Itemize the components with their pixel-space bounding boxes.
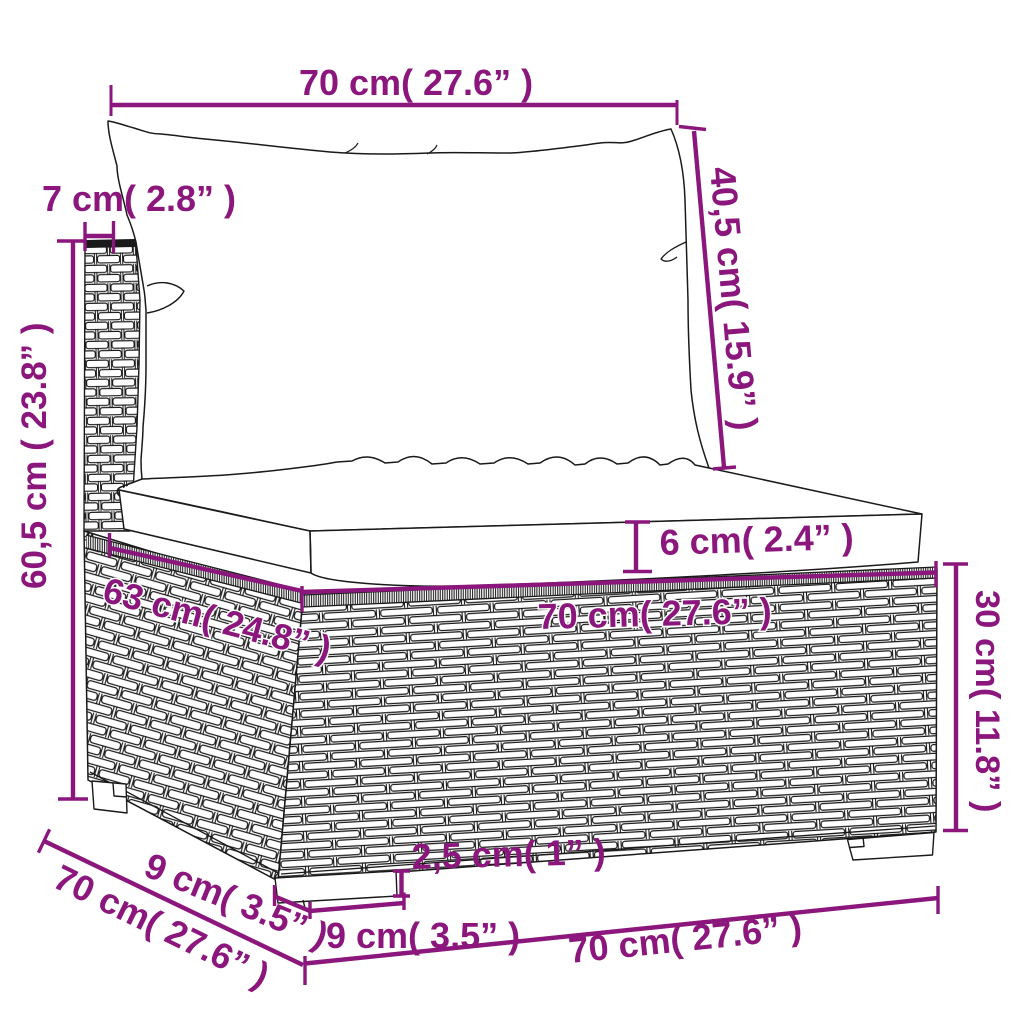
svg-text:30 cm( 11.8” ): 30 cm( 11.8” ) [968, 590, 1006, 812]
svg-text:2,5 cm( 1” ): 2,5 cm( 1” ) [411, 831, 606, 877]
svg-text:70 cm( 27.6” ): 70 cm( 27.6” ) [537, 590, 772, 637]
svg-text:7 cm( 2.8” ): 7 cm( 2.8” ) [42, 178, 236, 219]
svg-text:70 cm( 27.6” ): 70 cm( 27.6” ) [299, 62, 533, 103]
svg-text:9 cm( 3.5” ): 9 cm( 3.5” ) [326, 915, 520, 956]
svg-text:60,5 cm ( 23.8” ): 60,5 cm ( 23.8” ) [15, 322, 54, 589]
svg-text:6 cm( 2.4” ): 6 cm( 2.4” ) [659, 516, 854, 563]
